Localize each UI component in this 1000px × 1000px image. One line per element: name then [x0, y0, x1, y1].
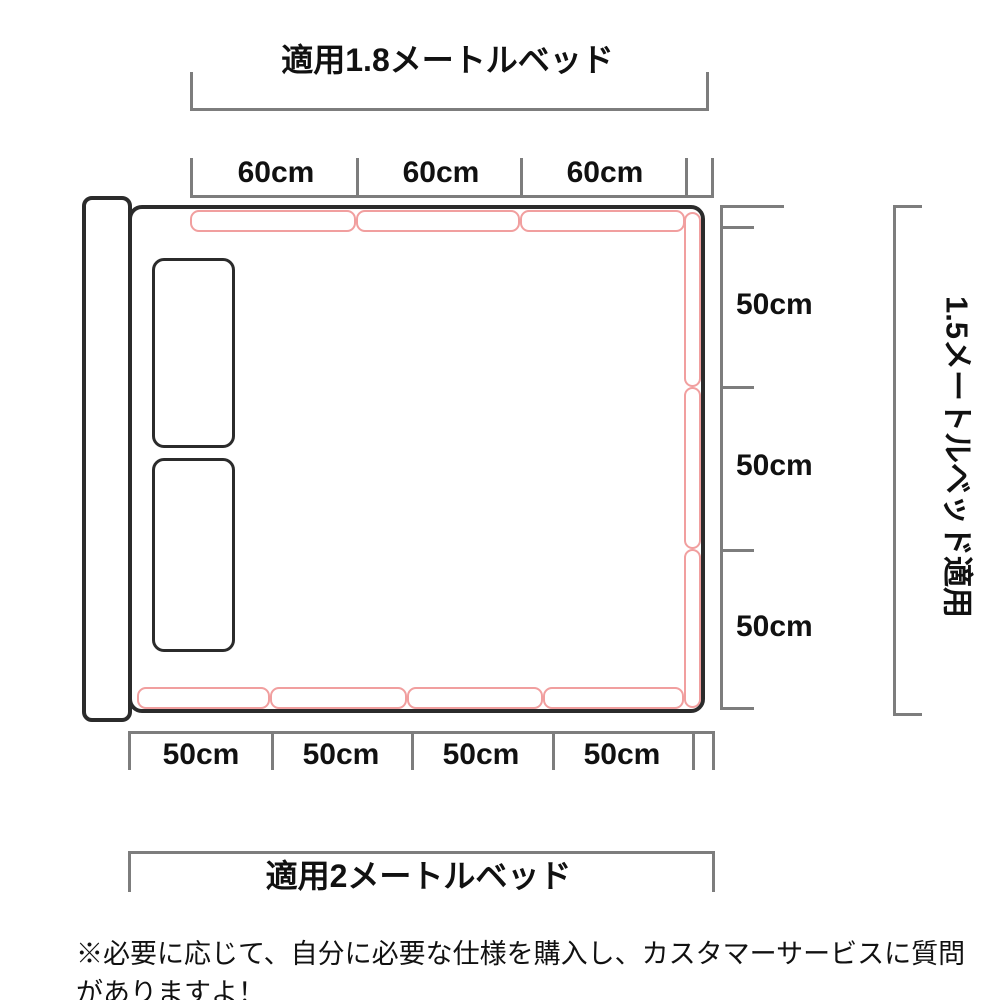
bottom-dimension-label: 50cm — [562, 738, 682, 771]
dimension-tick — [720, 205, 784, 208]
top-dimension-line: 60cm 60cm 60cm — [190, 158, 714, 198]
dimension-line — [720, 205, 723, 710]
footnote-text: ※必要に応じて、自分に必要な仕様を購入し、カスタマーサービスに質問がありますよ！ — [76, 932, 976, 1000]
rail-segment-right — [684, 212, 701, 387]
bottom-dimension-label: 50cm — [421, 738, 541, 771]
rail-segment-bottom — [137, 687, 270, 709]
rail-segment-top — [190, 210, 356, 232]
dimension-tick — [720, 226, 754, 229]
dimension-tick — [692, 734, 695, 770]
rail-segment-bottom — [407, 687, 543, 709]
bottom-dimension-line: 50cm 50cm 50cm 50cm — [128, 731, 715, 770]
bed-size-diagram: 適用1.8メートルベッド 60cm 60cm 60cm 50cm 50cm 50… — [0, 0, 1000, 1000]
rail-segment-right — [684, 549, 701, 708]
rail-segment-right — [684, 387, 701, 549]
rail-segment-top — [520, 210, 685, 232]
rail-segment-bottom — [270, 687, 407, 709]
dimension-tick — [720, 549, 754, 552]
pillow — [152, 458, 235, 652]
pillow — [152, 258, 235, 448]
headboard — [82, 196, 132, 722]
bottom-dimension-label: 50cm — [281, 738, 401, 771]
right-dimension-label: 50cm — [736, 288, 846, 321]
dimension-tick — [685, 158, 688, 195]
top-dimension-label: 60cm — [545, 156, 665, 189]
rail-segment-top — [356, 210, 520, 232]
top-dimension-label: 60cm — [381, 156, 501, 189]
dimension-tick — [552, 734, 555, 770]
right-bed-size-label: 1.5メートルベッド適用 — [919, 205, 975, 710]
top-dimension-label: 60cm — [216, 156, 336, 189]
dimension-tick — [411, 734, 414, 770]
dimension-tick — [271, 734, 274, 770]
top-bracket — [190, 72, 709, 111]
dimension-tick — [520, 158, 523, 195]
bottom-bed-size-label: 適用2メートルベッド — [128, 858, 709, 895]
dimension-tick — [720, 707, 754, 710]
right-dimension-label: 50cm — [736, 449, 846, 482]
dimension-tick — [356, 158, 359, 195]
bottom-dimension-label: 50cm — [141, 738, 261, 771]
dimension-tick — [720, 386, 754, 389]
right-dimension-label: 50cm — [736, 610, 846, 643]
rail-segment-bottom — [543, 687, 684, 709]
